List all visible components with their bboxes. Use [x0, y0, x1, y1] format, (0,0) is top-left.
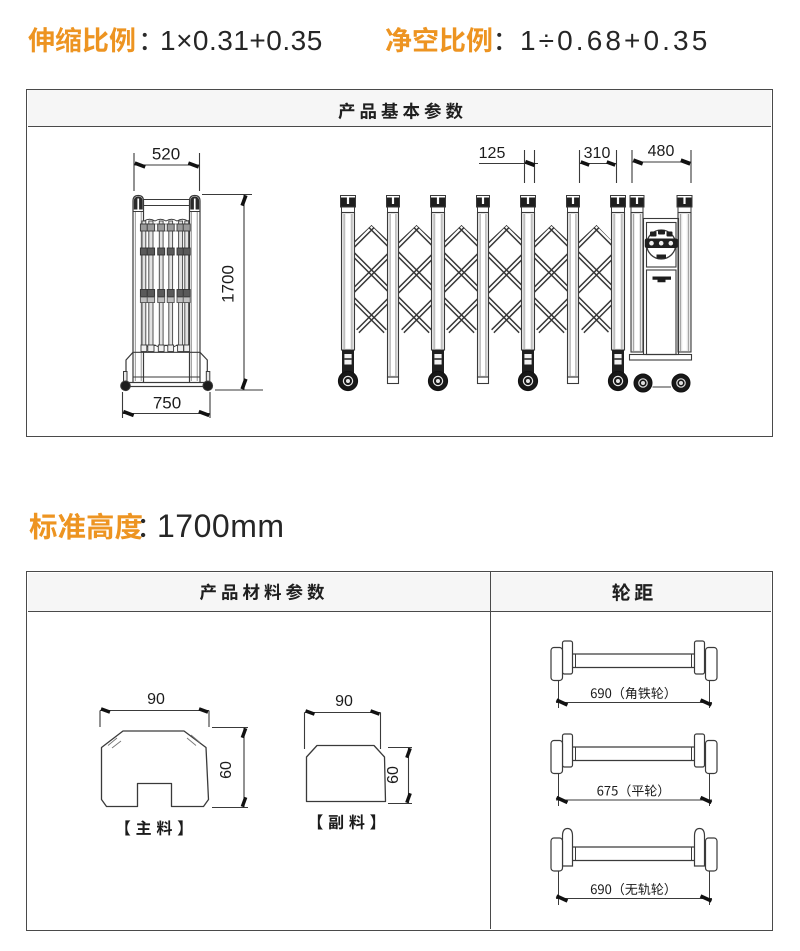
- svg-text:60: 60: [385, 766, 402, 784]
- svg-text:1700mm: 1700mm: [157, 508, 285, 544]
- svg-text:480: 480: [648, 143, 675, 160]
- svg-text:750: 750: [153, 394, 181, 413]
- svg-text:90: 90: [335, 693, 353, 710]
- svg-text:90: 90: [147, 691, 165, 708]
- svg-text:125: 125: [479, 145, 506, 162]
- svg-text:1÷0.68+0.35: 1÷0.68+0.35: [520, 25, 710, 56]
- svg-text:310: 310: [584, 145, 611, 162]
- svg-text:60: 60: [218, 761, 235, 779]
- svg-text:520: 520: [152, 145, 180, 164]
- svg-text:1×0.31+0.35: 1×0.31+0.35: [160, 25, 323, 56]
- svg-text:1700: 1700: [219, 265, 238, 303]
